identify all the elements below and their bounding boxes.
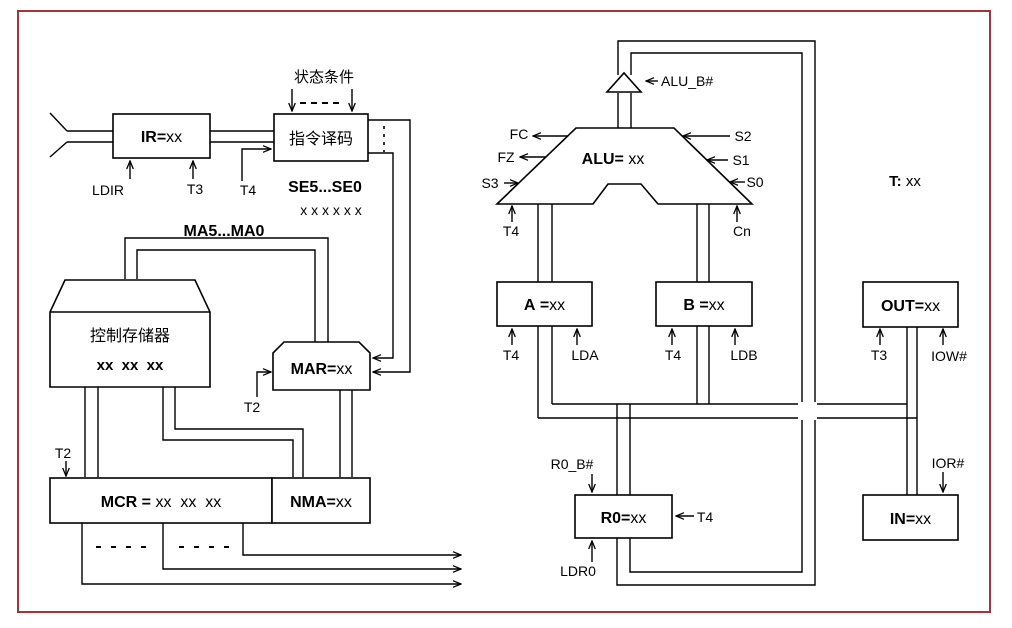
r0b-label: R0_B# <box>551 456 594 472</box>
t3-out-label: T3 <box>871 347 888 363</box>
s0-label: S0 <box>746 174 763 190</box>
a-register-label: A =xx <box>524 297 565 314</box>
status-condition-label: 状态条件 <box>294 69 354 86</box>
ir-register-label: IR=xx <box>141 129 182 146</box>
control-memory-label: xx xx xx <box>97 357 164 374</box>
se-bus-label: SE5...SE0 <box>288 179 362 196</box>
t4-b-label: T4 <box>665 347 682 363</box>
ldr0-label: LDR0 <box>560 563 596 579</box>
in-register-label: IN=xx <box>890 511 931 528</box>
t2-mcr-label: T2 <box>55 445 72 461</box>
mar-register-label: MAR=xx <box>291 361 353 378</box>
alu-label: ALU= xx <box>582 151 645 168</box>
t4-r0-label: T4 <box>697 509 714 525</box>
ldir-label: LDIR <box>92 182 124 198</box>
t-state-label: T: xx <box>889 173 921 190</box>
s3-label: S3 <box>481 175 498 191</box>
cpu-microprogram-diagram: IR=xx指令译码控制存储器xx xx xxMAR=xxMCR = xx xx … <box>0 0 1012 628</box>
b-register-label: B =xx <box>683 297 724 314</box>
t4-a-label: T4 <box>503 347 520 363</box>
ma-bus-label: MA5...MA0 <box>184 223 265 240</box>
t3-ir-label: T3 <box>187 181 204 197</box>
control-memory-label: 控制存储器 <box>90 327 170 345</box>
nma-register-label: NMA=xx <box>290 494 352 511</box>
t4-alu-label: T4 <box>503 223 520 239</box>
lda-label: LDA <box>571 347 599 363</box>
fc-label: FC <box>510 126 529 142</box>
iow-label: IOW# <box>931 348 967 364</box>
fz-label: FZ <box>497 149 515 165</box>
ior-label: IOR# <box>932 455 965 471</box>
diagram-page: IR=xx指令译码控制存储器xx xx xxMAR=xxMCR = xx xx … <box>0 0 1012 628</box>
mcr-register-label: MCR = xx xx xx <box>101 494 221 511</box>
se-bus-bits: x x x x x x <box>300 202 361 218</box>
r0-register-label: R0=xx <box>601 510 647 527</box>
cn-label: Cn <box>733 223 751 239</box>
ldb-label: LDB <box>730 347 757 363</box>
s1-label: S1 <box>732 152 749 168</box>
alu-b-label: ALU_B# <box>661 73 713 89</box>
t2-mar-label: T2 <box>244 399 261 415</box>
out-register-label: OUT=xx <box>881 298 940 315</box>
s2-label: S2 <box>734 128 751 144</box>
instruction-decoder-label: 指令译码 <box>289 130 353 148</box>
t4-decoder-label: T4 <box>240 182 257 198</box>
